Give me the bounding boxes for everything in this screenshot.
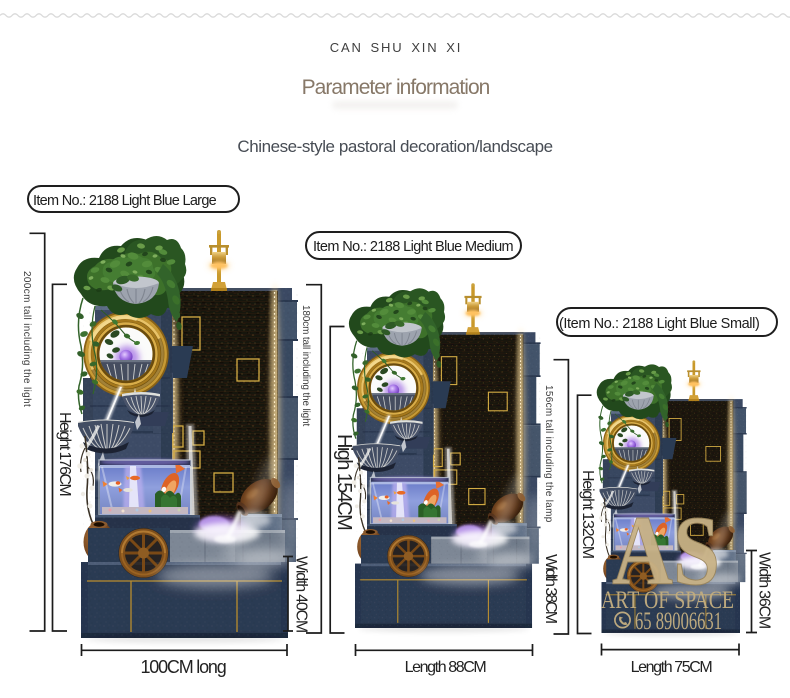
svg-text:65 89006631: 65 89006631 [635,608,722,635]
